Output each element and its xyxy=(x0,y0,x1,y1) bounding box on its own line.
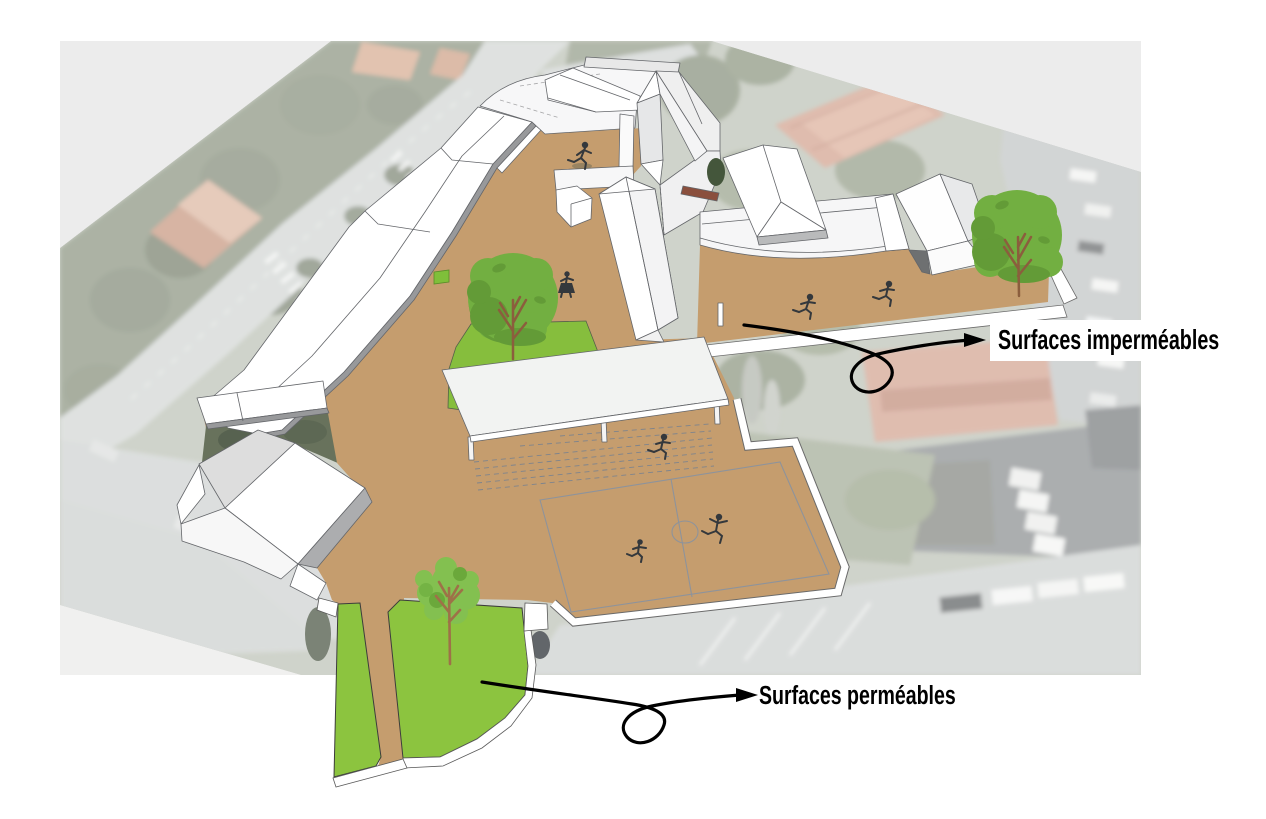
svg-text:Surfaces imperméables: Surfaces imperméables xyxy=(998,325,1219,356)
svg-text:Surfaces perméables: Surfaces perméables xyxy=(759,680,956,709)
